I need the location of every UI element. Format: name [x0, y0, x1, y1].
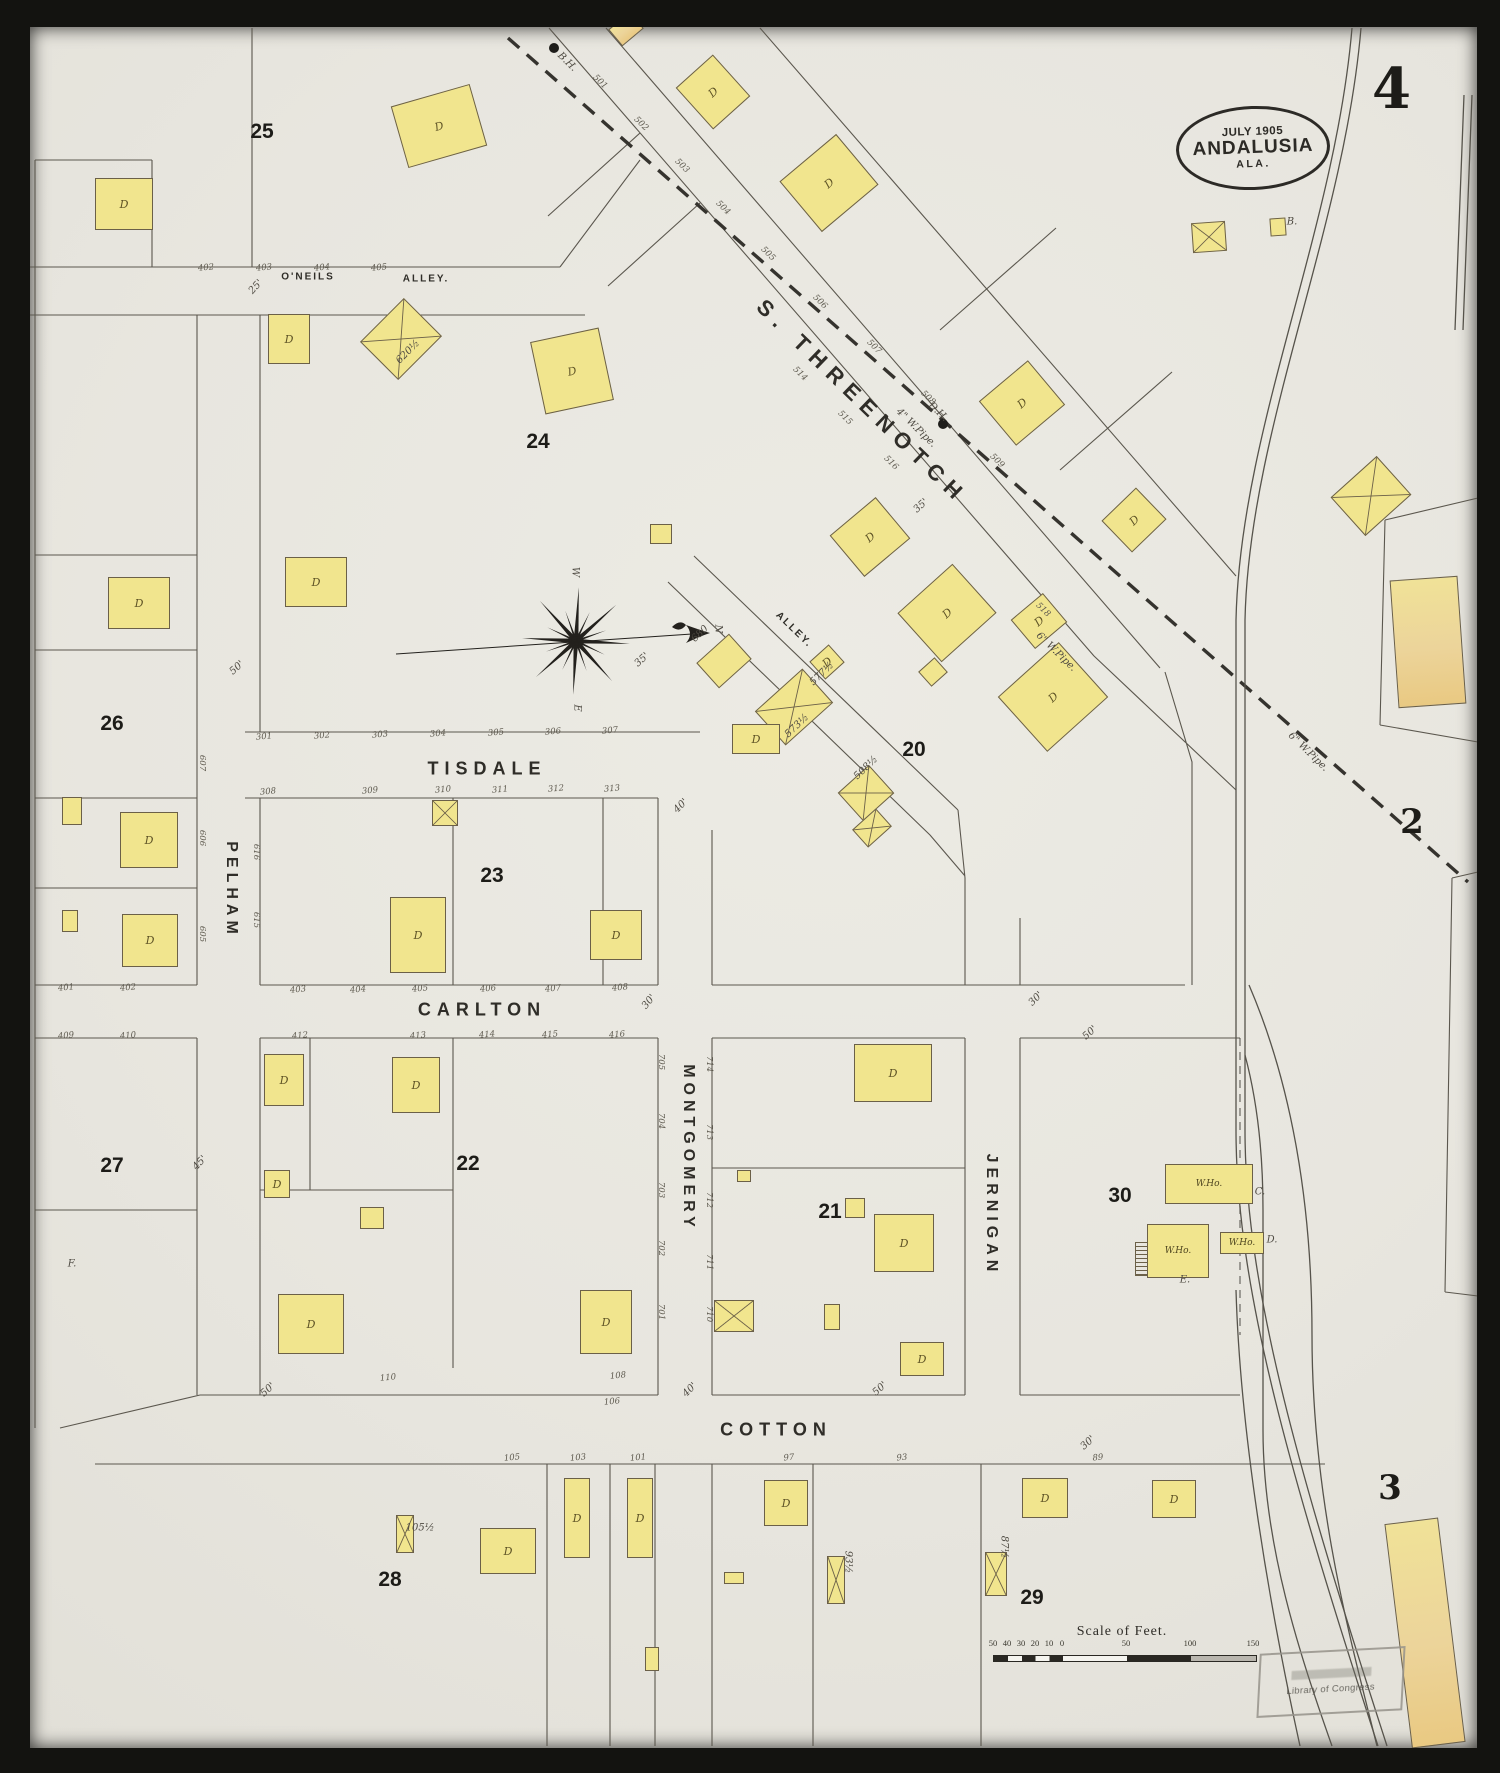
building-dwelling: D — [392, 1057, 440, 1113]
street-label: S. THREENOTCH — [751, 294, 973, 510]
building-dwelling: D — [268, 314, 310, 364]
house-number: 403 — [255, 262, 272, 273]
dwelling-mark: D — [1170, 1493, 1179, 1506]
house-number: 404 — [349, 984, 366, 995]
house-number: 310 — [434, 784, 451, 795]
dwelling-mark: D — [146, 934, 155, 947]
house-number: 302 — [313, 730, 330, 741]
dwelling-mark: D — [145, 834, 154, 847]
block-number: 26 — [100, 712, 123, 736]
scale-tick: 10 — [1045, 1638, 1054, 1648]
map-annotation: D.H. — [926, 400, 950, 424]
dwelling-mark: D — [312, 576, 321, 589]
map-annotation: C. — [1255, 1187, 1265, 1198]
scale-tick: 0 — [1060, 1638, 1064, 1648]
title-city: ANDALUSIA — [1192, 136, 1314, 160]
house-number: 703 — [656, 1182, 666, 1198]
house-number: 705 — [656, 1054, 666, 1070]
building-dwelling: D — [900, 1342, 944, 1376]
dwelling-mark: D — [120, 198, 129, 211]
house-number: 93 — [896, 1453, 908, 1464]
house-number: 409 — [57, 1030, 74, 1041]
house-number: 89 — [1092, 1453, 1104, 1464]
block-number: 21 — [818, 1200, 841, 1224]
block-number: 30 — [1108, 1184, 1131, 1208]
building-dwelling: D — [627, 1478, 653, 1558]
warehouse-mark: W.Ho. — [1165, 1246, 1192, 1256]
building-dwelling: D — [390, 897, 446, 973]
dwelling-mark: D — [918, 1353, 927, 1366]
map-annotation: 680 — [689, 623, 710, 644]
dwelling-mark: D — [602, 1316, 611, 1329]
dwelling-mark: D — [433, 119, 445, 134]
house-number: 402 — [197, 262, 214, 273]
building-dwelling: D — [979, 360, 1065, 446]
building-dwelling: D — [564, 1478, 590, 1558]
house-number: 711 — [704, 1254, 714, 1270]
dwelling-mark: D — [821, 175, 836, 191]
building — [360, 1207, 384, 1229]
house-number: 516 — [882, 454, 901, 472]
house-number: 97 — [783, 1453, 795, 1464]
building — [724, 1572, 744, 1584]
building — [1390, 576, 1467, 708]
dwelling-mark: D — [285, 333, 294, 346]
building — [737, 1170, 751, 1182]
house-number: 407 — [544, 983, 561, 994]
building — [1269, 217, 1286, 236]
building-dwelling: D — [120, 812, 178, 868]
building-outbuilding — [432, 800, 458, 826]
house-number: 702 — [656, 1240, 666, 1256]
house-number: 606 — [197, 830, 207, 846]
map-annotation: 105½ — [406, 1523, 435, 1534]
frame-left — [0, 0, 30, 1773]
dwelling-mark: D — [782, 1497, 791, 1510]
dwelling-mark: D — [414, 929, 423, 942]
map-annotation: 87½ — [999, 1536, 1010, 1558]
map-annotation: 6" W.Pipe. — [1286, 730, 1331, 774]
scale-tick: 20 — [1031, 1638, 1040, 1648]
dwelling-mark: D — [1126, 512, 1141, 527]
frame-right — [1477, 0, 1500, 1773]
dwelling-mark: D — [135, 597, 144, 610]
map-annotation: 50' — [228, 659, 247, 678]
map-annotation: 30' — [640, 993, 658, 1012]
house-number: 412 — [291, 1030, 308, 1041]
map-annotation: 45' — [191, 1154, 210, 1173]
building-dwelling: D — [108, 577, 170, 629]
building-dwelling: D — [278, 1294, 344, 1354]
house-number: 307 — [601, 725, 618, 736]
map-annotation: 40' — [672, 797, 691, 816]
house-number: 504 — [714, 199, 733, 217]
house-number: 515 — [836, 409, 855, 427]
title-state: ALA. — [1236, 157, 1271, 170]
stamp-smudge — [1291, 1667, 1371, 1680]
building-dwelling: D — [779, 134, 878, 232]
building-warehouse: W.Ho. — [1165, 1164, 1253, 1204]
building-dwelling: D — [732, 724, 780, 754]
house-number: 506 — [811, 293, 830, 311]
page-number: 4 — [1372, 56, 1411, 122]
map-annotation: E — [572, 704, 583, 711]
dwelling-mark: D — [1041, 1492, 1050, 1505]
building — [845, 1198, 865, 1218]
dwelling-mark: D — [1045, 689, 1060, 705]
map-annotation: 50' — [1081, 1024, 1100, 1043]
dwelling-mark: D — [612, 929, 621, 942]
house-number: 605 — [197, 926, 207, 942]
street-label: MONTGOMERY — [679, 1064, 697, 1232]
house-number: 509 — [988, 452, 1007, 470]
map-annotation: D. — [1267, 1235, 1278, 1246]
building-outbuilding — [360, 298, 442, 380]
scale-tick: 40 — [1003, 1638, 1012, 1648]
street-label: ALLEY. — [403, 274, 449, 285]
scale-tick: 150 — [1247, 1638, 1260, 1648]
dwelling-mark: D — [566, 364, 577, 379]
loading-platform — [1135, 1242, 1148, 1276]
house-number: 312 — [547, 783, 564, 794]
building-warehouse: W.Ho. — [1220, 1232, 1264, 1254]
dwelling-mark: D — [412, 1079, 421, 1092]
house-number: 507 — [865, 338, 884, 356]
dwelling-mark: D — [939, 605, 954, 621]
dwelling-mark: D — [280, 1074, 289, 1087]
frame-bottom — [0, 1748, 1500, 1773]
house-number: 616 — [251, 844, 261, 860]
stamp-text: Library of Congress — [1286, 1682, 1375, 1698]
house-number: 304 — [429, 728, 446, 739]
house-number: 405 — [411, 983, 428, 994]
building-dwelling: D — [95, 178, 153, 230]
dwelling-mark: D — [752, 733, 761, 746]
building-dwelling: D — [830, 497, 911, 577]
building-dwelling: D — [1022, 1478, 1068, 1518]
building-dwelling: D — [264, 1054, 304, 1106]
building-dwelling: D — [897, 564, 996, 663]
map-annotation: F. — [68, 1259, 77, 1270]
map-annotation: 93½ — [843, 1551, 854, 1573]
house-number: 313 — [603, 783, 620, 794]
block-number: 28 — [378, 1568, 401, 1592]
dwelling-mark: D — [273, 1178, 282, 1191]
warehouse-mark: W.Ho. — [1196, 1179, 1223, 1189]
house-number: 301 — [255, 731, 272, 742]
street-label: PELHAM — [222, 841, 240, 939]
house-number: 413 — [409, 1030, 426, 1041]
house-number: 103 — [569, 1452, 586, 1463]
block-number: 27 — [100, 1154, 123, 1178]
building — [62, 797, 82, 825]
house-number: 704 — [656, 1113, 666, 1129]
building-dwelling: D — [580, 1290, 632, 1354]
building — [645, 1647, 659, 1671]
map-annotation: 50' — [259, 1381, 278, 1400]
dwelling-mark: D — [504, 1545, 513, 1558]
dwelling-mark: D — [889, 1067, 898, 1080]
building-dwelling: D — [264, 1170, 290, 1198]
house-number: 714 — [704, 1056, 714, 1072]
house-number: 615 — [251, 912, 261, 928]
house-number: 713 — [704, 1124, 714, 1140]
block-number: 24 — [526, 430, 549, 454]
house-number: 408 — [611, 982, 628, 993]
scale-rule — [993, 1655, 1257, 1662]
map-annotation: 35' — [633, 651, 652, 670]
scale-tick: 50 — [989, 1638, 998, 1648]
street-label: COTTON — [720, 1420, 832, 1441]
dwelling-mark: D — [900, 1237, 909, 1250]
adjacent-sheet-number: 3 — [1378, 1468, 1402, 1508]
house-number: 401 — [57, 982, 74, 993]
sanborn-map-sheet: S. THREENOTCHTISDALECARLTONCOTTONPELHAMM… — [0, 0, 1500, 1773]
house-number: 502 — [632, 115, 651, 133]
building-dwelling: D — [391, 84, 487, 168]
building — [918, 657, 948, 687]
building — [1384, 1518, 1465, 1749]
house-number: 712 — [704, 1192, 714, 1208]
block-number: 20 — [902, 738, 925, 762]
house-number: 514 — [791, 365, 810, 383]
map-annotation: 35' — [912, 497, 931, 516]
building-dwelling: D — [480, 1528, 536, 1574]
house-number: 415 — [541, 1029, 558, 1040]
street-label: ALLEY. — [773, 610, 814, 650]
map-annotation: B.H. — [555, 50, 579, 73]
block-number: 22 — [456, 1152, 479, 1176]
map-overlay: S. THREENOTCHTISDALECARLTONCOTTONPELHAMM… — [0, 0, 1500, 1773]
building-dwelling: D — [874, 1214, 934, 1272]
house-number: 403 — [289, 984, 306, 995]
house-number: 501 — [591, 73, 610, 91]
warehouse-mark: W.Ho. — [1229, 1238, 1256, 1248]
map-annotation: 50' — [871, 1380, 890, 1399]
map-annotation: 25' — [247, 278, 266, 297]
dwelling-mark: D — [862, 529, 877, 545]
building-dwelling: D — [998, 642, 1108, 752]
street-label: TISDALE — [427, 759, 546, 780]
house-number: 305 — [487, 727, 504, 738]
map-annotation: N — [713, 625, 724, 634]
dwelling-mark: D — [1014, 395, 1029, 411]
building-dwelling: D — [764, 1480, 808, 1526]
street-label: JERNIGAN — [982, 1154, 1000, 1277]
block-number: 25 — [250, 120, 273, 144]
house-number: 404 — [313, 262, 330, 273]
building-dwelling: D — [590, 910, 642, 960]
building-dwelling: D — [1152, 1480, 1196, 1518]
dwelling-mark: D — [573, 1512, 582, 1525]
house-number: 410 — [119, 1030, 136, 1041]
house-number: 303 — [371, 729, 388, 740]
building — [650, 524, 672, 544]
frame-top — [0, 0, 1500, 27]
house-number: 416 — [608, 1029, 625, 1040]
house-number: 108 — [609, 1370, 626, 1381]
house-number: 503 — [673, 157, 692, 175]
block-number: 23 — [480, 864, 503, 888]
map-annotation: 30' — [1027, 990, 1046, 1009]
building-dwelling: D — [1101, 488, 1166, 553]
house-number: 110 — [379, 1372, 396, 1383]
building-outbuilding — [714, 1300, 754, 1332]
house-number: 311 — [491, 784, 508, 795]
house-number: 309 — [361, 785, 378, 796]
scale-tick: 100 — [1184, 1638, 1197, 1648]
building-dwelling: D — [530, 328, 614, 415]
house-number: 402 — [119, 982, 136, 993]
adjacent-sheet-number: 2 — [1400, 802, 1424, 842]
house-number: 101 — [629, 1452, 646, 1463]
building-dwelling: D — [854, 1044, 932, 1102]
building-outbuilding — [1191, 221, 1227, 253]
loc-stamp: Library of Congress — [1256, 1646, 1405, 1718]
building-dwelling: D — [285, 557, 347, 607]
house-number: 406 — [479, 983, 496, 994]
map-annotation: 40' — [681, 1381, 700, 1400]
house-number: 710 — [704, 1306, 714, 1322]
building-dwelling: D — [122, 914, 178, 967]
building-dwelling: D — [676, 54, 751, 129]
scale-tick: 30 — [1017, 1638, 1026, 1648]
map-annotation: B. — [1287, 217, 1298, 228]
house-number: 306 — [544, 726, 561, 737]
map-annotation: 30' — [1079, 1434, 1098, 1453]
house-number: 414 — [478, 1029, 495, 1040]
dwelling-mark: D — [705, 84, 720, 100]
street-label: CARLTON — [418, 1000, 546, 1021]
house-number: 105 — [503, 1452, 520, 1463]
house-number: 505 — [759, 245, 778, 263]
dwelling-mark: D — [307, 1318, 316, 1331]
building — [696, 634, 751, 689]
building-outbuilding — [985, 1552, 1007, 1596]
building-outbuilding — [396, 1515, 414, 1553]
block-number: 29 — [1020, 1586, 1043, 1610]
house-number: 308 — [259, 786, 276, 797]
scale-tick: 50 — [1122, 1638, 1131, 1648]
house-number: 607 — [197, 755, 207, 771]
building — [62, 910, 78, 932]
street-label: O'NEILS — [281, 272, 335, 283]
house-number: 701 — [656, 1304, 666, 1320]
building-warehouse: W.Ho. — [1147, 1224, 1209, 1278]
map-annotation: E. — [1180, 1275, 1190, 1286]
dwelling-mark: D — [636, 1512, 645, 1525]
building — [824, 1304, 840, 1330]
building-outbuilding — [1331, 456, 1412, 536]
house-number: 405 — [370, 262, 387, 273]
house-number: 106 — [603, 1396, 620, 1407]
map-annotation: W — [570, 567, 581, 577]
